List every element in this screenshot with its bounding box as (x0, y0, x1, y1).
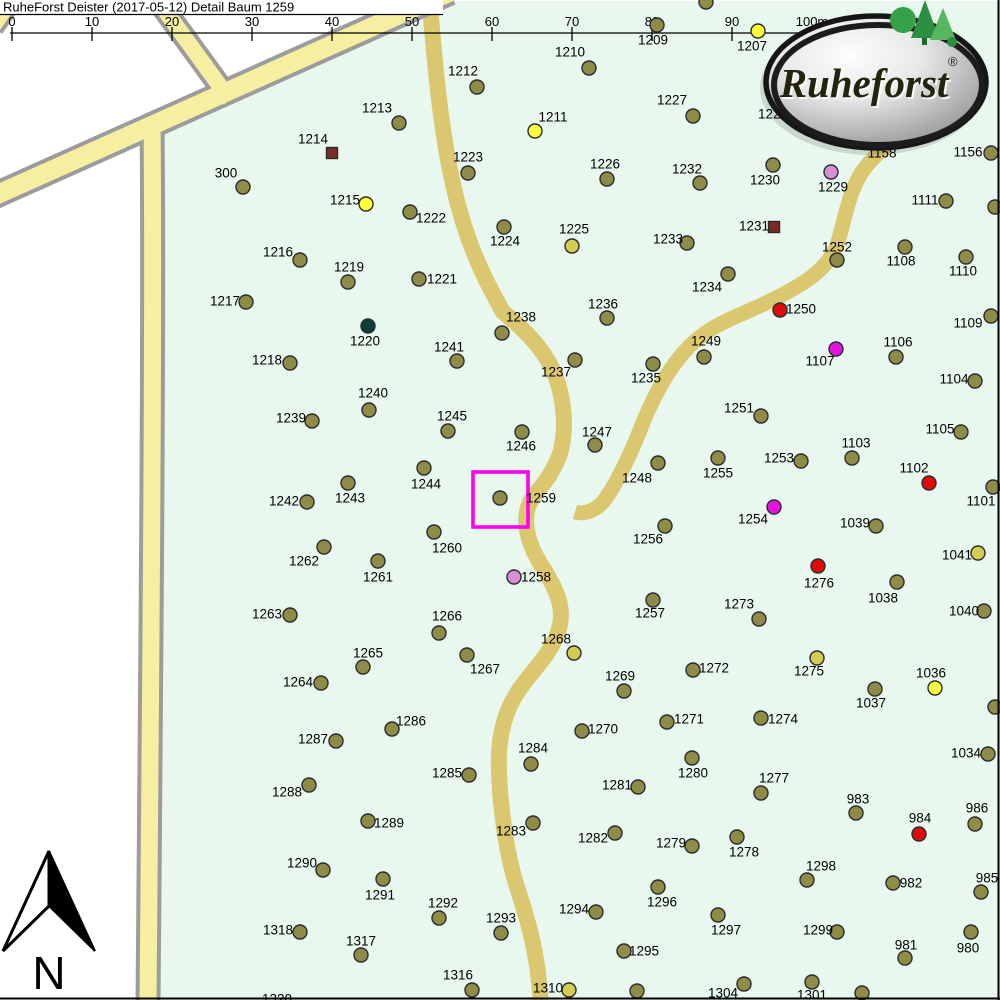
tree-label-1253: 1253 (764, 451, 794, 466)
tree-marker-1104[interactable] (968, 374, 982, 388)
tree-marker-1034[interactable] (981, 747, 995, 761)
tree-marker-1264[interactable] (314, 676, 328, 690)
tree-label-1287: 1287 (298, 732, 328, 747)
tree-label-985: 985 (976, 871, 999, 886)
tree-marker-1318[interactable] (293, 925, 307, 939)
tree-label-1108: 1108 (886, 254, 915, 269)
tree-label-1271: 1271 (674, 712, 704, 727)
tree-marker-1225[interactable] (565, 239, 579, 253)
tree-marker-1283[interactable] (526, 816, 540, 830)
tree-label-1279: 1279 (656, 836, 686, 851)
tree-marker-1207[interactable] (751, 24, 765, 38)
tree-marker-1290[interactable] (316, 863, 330, 877)
tree-marker-1316[interactable] (465, 983, 479, 997)
tree-marker-unlabeled[interactable] (630, 984, 644, 998)
tree-marker-1040[interactable] (977, 604, 991, 618)
logo-text: Ruheforst (779, 60, 950, 106)
tree-marker-1241[interactable] (450, 354, 464, 368)
tree-label-1251: 1251 (724, 401, 754, 416)
tree-label-1207: 1207 (737, 39, 767, 54)
tree-marker-1258[interactable] (507, 570, 521, 584)
tree-marker-1247[interactable] (588, 438, 602, 452)
tree-label-1277: 1277 (759, 771, 789, 786)
tree-label-1223: 1223 (453, 150, 483, 165)
tree-label-986: 986 (966, 801, 989, 816)
tree-marker-1294[interactable] (589, 905, 603, 919)
tree-label-300: 300 (215, 166, 238, 181)
tree-marker-981[interactable] (898, 951, 912, 965)
tree-marker-1227[interactable] (686, 109, 700, 123)
tree-label-1249: 1249 (691, 334, 721, 349)
tree-label-1289: 1289 (374, 816, 404, 831)
tree-marker-1229[interactable] (824, 165, 838, 179)
tree-label-1257: 1257 (635, 606, 665, 621)
tree-marker-1215[interactable] (359, 197, 373, 211)
tree-label-1037: 1037 (856, 696, 886, 711)
tree-label-1268: 1268 (541, 632, 571, 647)
tree-label-984: 984 (909, 811, 932, 826)
tree-marker-1211[interactable] (528, 124, 542, 138)
tree-marker-1231[interactable] (769, 222, 780, 233)
tree-label-1284: 1284 (518, 741, 549, 756)
tree-marker-1036[interactable] (928, 681, 942, 695)
tree-marker-1268[interactable] (567, 646, 581, 660)
tree-label-1280: 1280 (678, 766, 708, 781)
tree-marker-1234[interactable] (721, 267, 735, 281)
tree-marker-1230[interactable] (766, 158, 780, 172)
title-bar: RuheForst Deister (2017-05-12) Detail Ba… (0, 0, 443, 15)
tree-marker-1262[interactable] (317, 540, 331, 554)
tree-marker-1261[interactable] (371, 554, 385, 568)
tree-label-1226: 1226 (590, 157, 620, 172)
tree-marker-1271[interactable] (660, 715, 674, 729)
tree-label-1036: 1036 (916, 666, 946, 681)
tree-label-1243: 1243 (335, 491, 365, 506)
tree-marker-1243[interactable] (341, 476, 355, 490)
forest-map-canvas: 0102030405060708090100m RuheForst Deiste… (0, 0, 1000, 1000)
tree-marker-1285[interactable] (462, 768, 476, 782)
tree-marker-1263[interactable] (283, 608, 297, 622)
tree-label-1261: 1261 (363, 570, 393, 585)
tree-marker-1226[interactable] (600, 172, 614, 186)
tree-label-1110: 1110 (949, 264, 977, 279)
tree-label-1103: 1103 (841, 436, 870, 451)
scale-tick-label: 0 (8, 14, 15, 29)
tree-label-1294: 1294 (559, 902, 590, 917)
tree-label-1260: 1260 (432, 541, 462, 556)
logo-registered-mark: ® (948, 54, 958, 69)
tree-marker-1282[interactable] (608, 826, 622, 840)
tree-marker-980[interactable] (964, 925, 978, 939)
tree-marker-1239[interactable] (305, 414, 319, 428)
tree-label-1252: 1252 (822, 240, 852, 255)
tree-label-1262: 1262 (289, 554, 319, 569)
tree-label-1258: 1258 (521, 570, 551, 585)
tree-label-1269: 1269 (605, 669, 635, 684)
tree-marker-1255[interactable] (711, 451, 725, 465)
tree-marker-1236[interactable] (600, 311, 614, 325)
tree-label-982: 982 (900, 876, 923, 891)
tree-marker-1297[interactable] (711, 908, 725, 922)
tree-marker-1287[interactable] (329, 734, 343, 748)
tree-label-1248: 1248 (622, 471, 652, 486)
tree-label-1310: 1310 (533, 981, 563, 996)
tree-label-1318: 1318 (263, 923, 293, 938)
tree-marker-1238[interactable] (495, 326, 509, 340)
tree-marker-1254[interactable] (767, 500, 781, 514)
scale-tick-label: 50 (405, 14, 419, 29)
tree-label-1255: 1255 (703, 466, 733, 481)
tree-label-1293: 1293 (486, 911, 516, 926)
tree-label-1109: 1109 (953, 316, 982, 331)
tree-marker-1108[interactable] (898, 240, 912, 254)
tree-marker-1210[interactable] (582, 61, 596, 75)
tree-marker-1109[interactable] (984, 309, 998, 323)
tree-label-1239: 1239 (276, 411, 306, 426)
tree-marker-1221[interactable] (412, 272, 426, 286)
tree-label-1156: 1156 (953, 145, 982, 160)
tree-label-1298: 1298 (806, 859, 836, 874)
tree-label-1316: 1316 (443, 968, 473, 983)
tree-label-1238: 1238 (506, 310, 536, 325)
tree-label-981: 981 (895, 938, 918, 953)
tree-label-1283: 1283 (496, 824, 526, 839)
tree-marker-1222[interactable] (403, 205, 417, 219)
tree-label-1214: 1214 (298, 132, 329, 147)
tree-marker-1270[interactable] (575, 724, 589, 738)
tree-marker-1219[interactable] (341, 275, 355, 289)
tree-marker-982[interactable] (886, 876, 900, 890)
tree-marker-1037[interactable] (868, 682, 882, 696)
tree-label-1288: 1288 (272, 785, 302, 800)
scale-tick-label: 70 (565, 14, 579, 29)
tree-marker-1246[interactable] (515, 425, 529, 439)
tree-label-1278: 1278 (729, 845, 759, 860)
scale-tick-label: 10 (85, 14, 99, 29)
tree-label-1229: 1229 (818, 180, 848, 195)
tree-label-1234: 1234 (692, 280, 723, 295)
tree-label-1225: 1225 (559, 222, 589, 237)
tree-marker-1288[interactable] (302, 778, 316, 792)
map-viewport: 0102030405060708090100m RuheForst Deiste… (0, 0, 1000, 1000)
tree-label-1209: 1209 (638, 33, 668, 48)
tree-label-1240: 1240 (358, 386, 388, 401)
tree-marker-1103[interactable] (845, 451, 859, 465)
tree-marker-1111[interactable] (939, 194, 953, 208)
tree-label-1224: 1224 (490, 234, 521, 249)
tree-label-1041: 1041 (942, 548, 972, 563)
tree-label-1034: 1034 (951, 746, 982, 761)
tree-marker-986[interactable] (968, 817, 982, 831)
tree-marker-1284[interactable] (524, 757, 538, 771)
tree-label-1290: 1290 (287, 856, 317, 871)
tree-label-1273: 1273 (724, 597, 754, 612)
tree-marker-1277[interactable] (754, 786, 768, 800)
tree-marker-1217[interactable] (239, 295, 253, 309)
tree-marker-1260[interactable] (427, 525, 441, 539)
tree-label-1250: 1250 (786, 302, 816, 317)
tree-label-1233: 1233 (653, 232, 683, 247)
tree-marker-1276[interactable] (811, 559, 825, 573)
tree-marker-1265[interactable] (356, 660, 370, 674)
tree-label-1039: 1039 (840, 516, 870, 531)
tree-marker-1272[interactable] (686, 663, 700, 677)
scale-tick-label: 30 (245, 14, 259, 29)
tree-label-1102: 1102 (899, 461, 928, 476)
tree-label-1220: 1220 (350, 334, 380, 349)
tree-marker-1249[interactable] (697, 350, 711, 364)
tree-label-1245: 1245 (437, 409, 467, 424)
tree-marker-1212[interactable] (470, 80, 484, 94)
tree-label-1232: 1232 (672, 162, 702, 177)
tree-marker-1102[interactable] (922, 476, 936, 490)
tree-marker-1209[interactable] (650, 18, 664, 32)
tree-label-1254: 1254 (738, 512, 769, 527)
tree-marker-1269[interactable] (617, 684, 631, 698)
tree-label-1297: 1297 (711, 923, 741, 938)
tree-label-1213: 1213 (362, 101, 392, 116)
north-label: N (32, 947, 65, 999)
tree-label-1286: 1286 (396, 714, 426, 729)
tree-marker-1242[interactable] (300, 495, 314, 509)
tree-marker-1252[interactable] (830, 253, 844, 267)
tree-marker-1240[interactable] (362, 403, 376, 417)
tree-label-1276: 1276 (804, 576, 834, 591)
tree-label-1242: 1242 (269, 494, 299, 509)
tree-marker-1156[interactable] (984, 146, 998, 160)
tree-label-1040: 1040 (949, 604, 979, 619)
tree-label-1106: 1106 (883, 335, 912, 350)
tree-label-1235: 1235 (631, 371, 661, 386)
tree-marker-985[interactable] (974, 885, 988, 899)
tree-label-1256: 1256 (633, 532, 663, 547)
tree-marker-1250[interactable] (773, 303, 787, 317)
tree-label-1241: 1241 (434, 340, 464, 355)
tree-label-1292: 1292 (428, 896, 458, 911)
tree-label-1231: 1231 (739, 219, 769, 234)
tree-label-980: 980 (957, 941, 980, 956)
tree-marker-1317[interactable] (354, 948, 368, 962)
tree-label-1264: 1264 (283, 675, 314, 690)
tree-label-983: 983 (847, 792, 870, 807)
tree-label-1275: 1275 (794, 664, 824, 679)
map-title: RuheForst Deister (2017-05-12) Detail Ba… (3, 0, 294, 15)
tree-label-1270: 1270 (588, 722, 618, 737)
tree-label-1291: 1291 (365, 888, 395, 903)
tree-marker-unlabeled[interactable] (699, 0, 713, 9)
tree-label-1236: 1236 (588, 297, 618, 312)
tree-label-1299: 1299 (803, 923, 833, 938)
tree-marker-1245[interactable] (441, 424, 455, 438)
tree-label-1247: 1247 (582, 425, 612, 440)
scale-tick-label: 40 (325, 14, 339, 29)
tree-marker-1110[interactable] (959, 250, 973, 264)
tree-label-1107: 1107 (805, 354, 834, 369)
tree-label-1295: 1295 (629, 944, 659, 959)
tree-label-1111: 1111 (911, 193, 938, 208)
tree-marker-1235[interactable] (646, 357, 660, 371)
tree-label-1101: 1101 (966, 494, 995, 509)
tree-label-1263: 1263 (252, 607, 282, 622)
tree-label-1265: 1265 (353, 646, 383, 661)
scale-tick-label: 90 (725, 14, 739, 29)
tree-marker-1280[interactable] (685, 751, 699, 765)
tree-marker-1267[interactable] (460, 648, 474, 662)
tree-label-1227: 1227 (657, 93, 687, 108)
tree-marker-1214[interactable] (327, 148, 338, 159)
tree-marker-1216[interactable] (293, 253, 307, 267)
tree-label-1211: 1211 (538, 110, 567, 125)
tree-label-1317: 1317 (346, 934, 376, 949)
tree-marker-1105[interactable] (954, 425, 968, 439)
tree-label-1212: 1212 (448, 64, 478, 79)
tree-label-1244: 1244 (411, 477, 442, 492)
tree-marker-984[interactable] (912, 827, 926, 841)
tree-marker-1274[interactable] (754, 711, 768, 725)
tree-label-1296: 1296 (647, 895, 677, 910)
tree-marker-1266[interactable] (432, 626, 446, 640)
tree-label-1221: 1221 (427, 272, 457, 287)
tree-label-1272: 1272 (699, 661, 729, 676)
tree-marker-1039[interactable] (869, 519, 883, 533)
tree-label-1266: 1266 (432, 609, 462, 624)
tree-label-1285: 1285 (432, 766, 462, 781)
scale-tick-label: 60 (485, 14, 499, 29)
tree-label-1219: 1219 (334, 260, 364, 275)
tree-marker-1244[interactable] (417, 461, 431, 475)
tree-marker-1251[interactable] (754, 409, 768, 423)
tree-label-1282: 1282 (578, 831, 608, 846)
tree-marker-1218[interactable] (283, 356, 297, 370)
tree-label-1218: 1218 (252, 353, 282, 368)
tree-marker-1273[interactable] (752, 612, 766, 626)
tree-marker-1293[interactable] (494, 926, 508, 940)
tree-marker-1298[interactable] (800, 873, 814, 887)
tree-label-1104: 1104 (939, 372, 969, 387)
tree-marker-1220[interactable] (361, 319, 375, 333)
tree-marker-1041[interactable] (971, 546, 985, 560)
tree-marker-1232[interactable] (693, 176, 707, 190)
tree-marker-1279[interactable] (685, 839, 699, 853)
tree-label-1216: 1216 (263, 245, 293, 260)
tree-label-1215: 1215 (330, 193, 360, 208)
tree-label-1259: 1259 (526, 491, 556, 506)
tree-marker-1224[interactable] (497, 220, 511, 234)
tree-marker-1259[interactable] (493, 491, 507, 505)
tree-label-1230: 1230 (750, 173, 780, 188)
tree-label-1274: 1274 (768, 712, 799, 727)
tree-marker-1289[interactable] (361, 814, 375, 828)
tree-marker-1292[interactable] (432, 911, 446, 925)
tree-marker-300[interactable] (236, 180, 250, 194)
tree-marker-1281[interactable] (631, 780, 645, 794)
tree-marker-1304[interactable] (737, 977, 751, 991)
tree-marker-1223[interactable] (461, 166, 475, 180)
tree-marker-1038[interactable] (890, 575, 904, 589)
tree-marker-1213[interactable] (392, 116, 406, 130)
tree-label-1038: 1038 (868, 591, 898, 606)
tree-label-1246: 1246 (506, 439, 536, 454)
tree-marker-1291[interactable] (376, 872, 390, 886)
tree-marker-983[interactable] (849, 806, 863, 820)
tree-label-1237: 1237 (541, 365, 571, 380)
tree-label-1217: 1217 (210, 294, 240, 309)
tree-marker-1253[interactable] (794, 454, 808, 468)
tree-marker-1278[interactable] (730, 830, 744, 844)
tree-label-1105: 1105 (925, 422, 954, 437)
tree-label-1210: 1210 (555, 45, 585, 60)
tree-label-1281: 1281 (602, 778, 632, 793)
tree-marker-1248[interactable] (651, 456, 665, 470)
tree-marker-1310[interactable] (562, 983, 576, 997)
tree-label-1222: 1222 (416, 211, 446, 226)
tree-label-1267: 1267 (470, 662, 500, 677)
scale-tick-label: 20 (165, 14, 179, 29)
tree-marker-1296[interactable] (651, 880, 665, 894)
tree-marker-1106[interactable] (889, 350, 903, 364)
